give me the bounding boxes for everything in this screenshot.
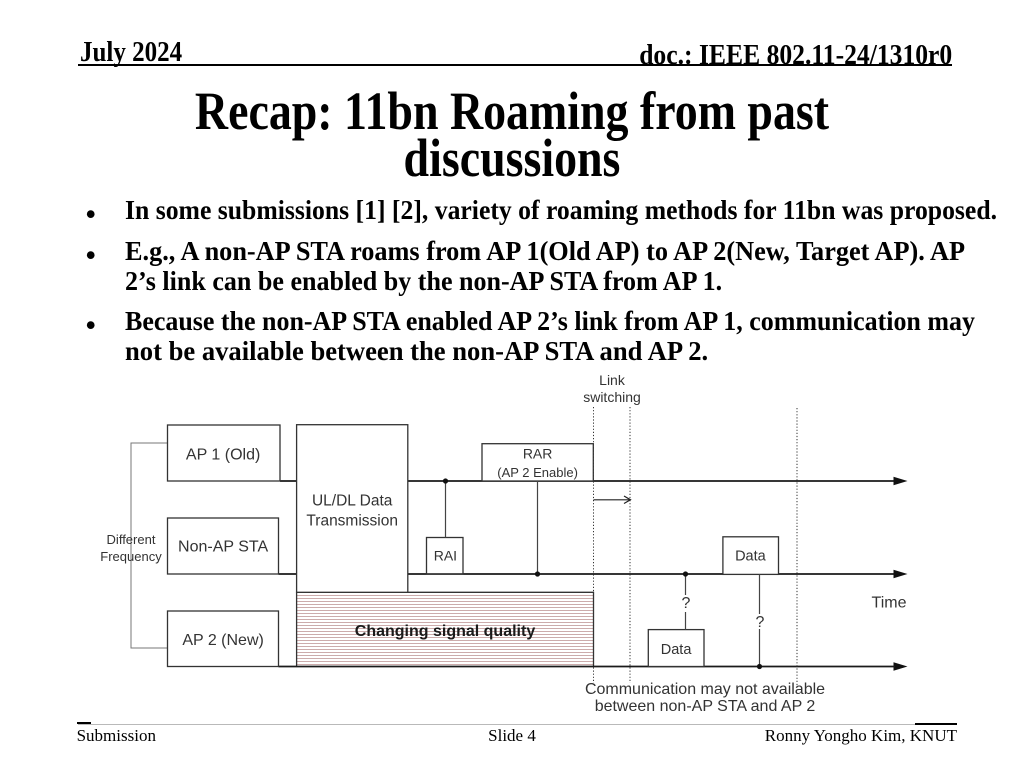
svg-text:Time: Time xyxy=(872,595,907,612)
svg-text:Changing signal quality: Changing signal quality xyxy=(355,623,536,640)
svg-text:Different: Different xyxy=(107,532,156,547)
svg-text:RAR: RAR xyxy=(523,445,553,461)
svg-text:Frequency: Frequency xyxy=(100,549,162,564)
svg-text:AP 2 (New): AP 2 (New) xyxy=(182,632,264,649)
svg-text:RAI: RAI xyxy=(434,548,457,564)
svg-text:AP 1 (Old): AP 1 (Old) xyxy=(186,447,260,464)
svg-text:Communication may not availabl: Communication may not available xyxy=(585,681,825,698)
svg-text:Non-AP STA: Non-AP STA xyxy=(178,539,268,556)
svg-text:switching: switching xyxy=(583,389,641,405)
svg-text:Data: Data xyxy=(661,642,693,658)
svg-text:(AP 2 Enable): (AP 2 Enable) xyxy=(497,465,578,480)
svg-text:UL/DL Data: UL/DL Data xyxy=(312,493,393,510)
svg-text:?: ? xyxy=(756,614,765,631)
svg-text:?: ? xyxy=(682,595,691,612)
svg-text:Link: Link xyxy=(599,372,626,388)
svg-text:Transmission: Transmission xyxy=(306,512,398,529)
svg-text:between non-AP STA and AP 2: between non-AP STA and AP 2 xyxy=(595,698,816,715)
svg-text:Data: Data xyxy=(735,548,767,564)
